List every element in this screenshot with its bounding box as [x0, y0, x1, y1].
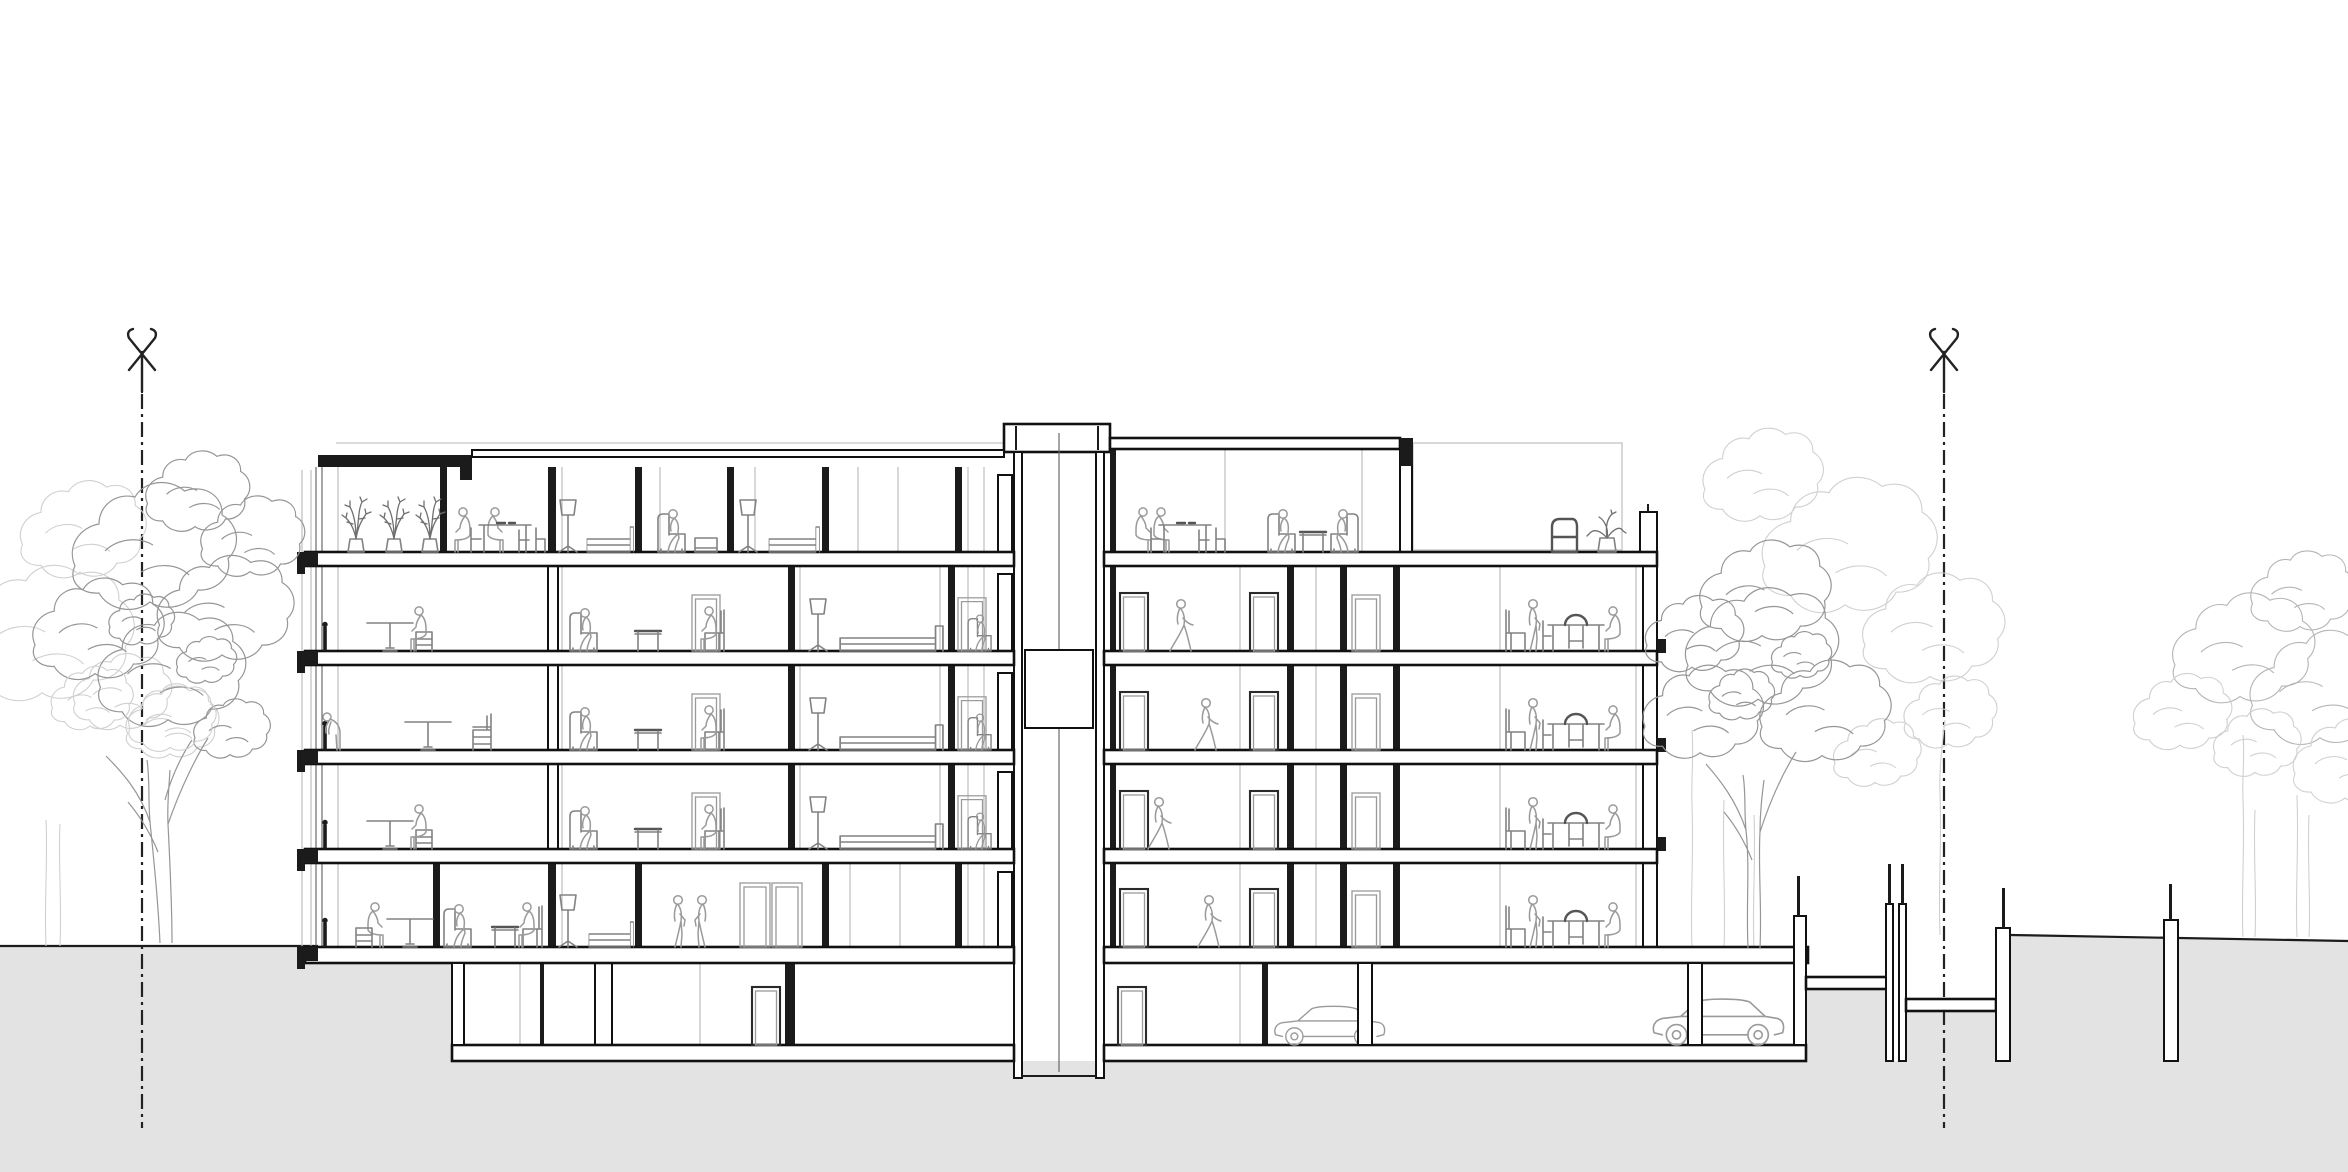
person-figure [519, 903, 534, 947]
axis-marker-right-icon [1930, 329, 1958, 392]
terrace-plant [1587, 510, 1626, 552]
tree-right-back-group [1691, 428, 2005, 948]
side-table [1300, 532, 1326, 552]
chair [523, 906, 542, 947]
roof-slab-right [1110, 438, 1400, 449]
loggia-plant [380, 497, 409, 552]
garage-end-wall [1794, 916, 1806, 1045]
basement-door [1118, 987, 1146, 1045]
balcony-glass-line [302, 470, 311, 946]
railing-post [1888, 864, 1891, 904]
car [1653, 999, 1783, 1045]
ground-slab-left [305, 947, 1014, 963]
person-figure [1170, 600, 1193, 651]
floor-level-1 [356, 883, 1620, 947]
background-structure [1413, 443, 1622, 550]
loggia-parapet [318, 455, 472, 467]
armchair [658, 514, 685, 552]
tree-left-back [0, 481, 219, 946]
railing-post [1797, 876, 1800, 916]
pedestal-table [387, 919, 433, 947]
retaining-wall [1996, 928, 2010, 1061]
basement-wall-left [452, 963, 464, 1045]
floor-lamp [739, 500, 757, 552]
roof-step [1400, 438, 1413, 466]
stair-tower-head [1004, 424, 1110, 452]
stool [356, 928, 372, 947]
elevator-car [1025, 650, 1093, 728]
parking-garage [1275, 963, 1784, 1045]
garage-column [1358, 963, 1372, 1045]
tree-right-front [1643, 540, 1891, 948]
stacked-chair [473, 714, 491, 750]
dining-table [1151, 523, 1225, 552]
basement-door [752, 987, 780, 1045]
retaining-wall [2164, 920, 2178, 1061]
bed [587, 527, 634, 552]
elevator-core [1004, 424, 1110, 1078]
basement-slab-right [1104, 1045, 1806, 1061]
person-figure [674, 896, 685, 947]
double-door [740, 883, 802, 947]
axis-marker-left-icon [128, 329, 156, 392]
person-figure [1195, 699, 1218, 750]
building-section-drawing: Architectural cross-section: five-storey… [0, 0, 2348, 1172]
person-figure [1148, 798, 1171, 849]
terrace-parapet [1640, 512, 1657, 552]
side-table [492, 927, 518, 947]
railing-post [1901, 864, 1904, 904]
tree-far-right-group [2133, 551, 2348, 937]
railing-post [2002, 888, 2005, 928]
armchair [1268, 514, 1295, 552]
armchair [444, 909, 471, 947]
retaining-wall [1899, 904, 1906, 1061]
person-figure [1198, 896, 1221, 947]
dining-table [471, 523, 545, 552]
light-well-bridge [1806, 977, 1890, 989]
floor-level-3 [323, 692, 1620, 750]
light-well-bridge [1906, 999, 1996, 1011]
person-figure [455, 508, 470, 552]
pedestal-table [405, 722, 451, 750]
basement-slab-left [452, 1045, 1014, 1061]
ground-slab-terrace [1104, 947, 1808, 963]
ottoman [695, 538, 717, 552]
railing-post [2169, 884, 2172, 920]
retaining-wall [1886, 904, 1893, 1061]
terrace-chair [1552, 519, 1577, 552]
loggia-plant [342, 497, 371, 552]
floor-slabs [297, 438, 1808, 1061]
garage-column [1688, 963, 1702, 1045]
roof-slab-left [472, 450, 1004, 457]
building-section [297, 424, 1808, 1078]
